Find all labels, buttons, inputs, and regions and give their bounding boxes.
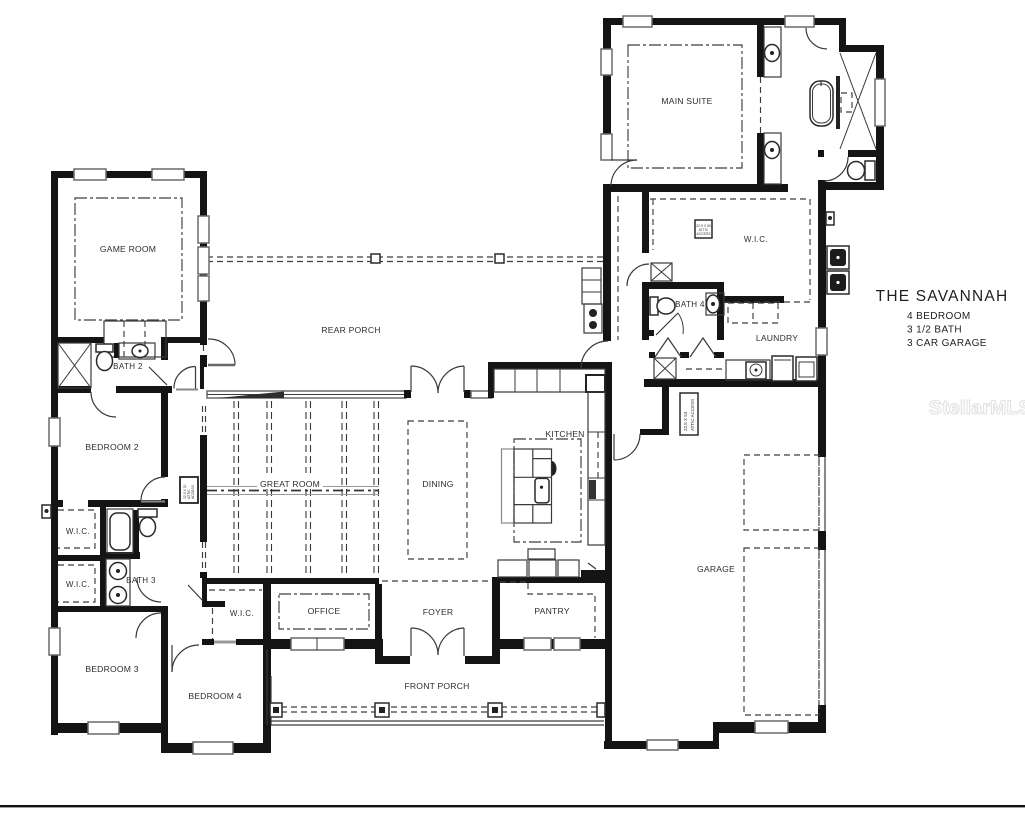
svg-text:BATH 4: BATH 4 bbox=[675, 300, 705, 309]
svg-text:BEDROOM 3: BEDROOM 3 bbox=[85, 664, 138, 674]
svg-text:FRONT PORCH: FRONT PORCH bbox=[404, 681, 469, 691]
svg-text:W.I.C.: W.I.C. bbox=[66, 527, 90, 536]
svg-text:GAME ROOM: GAME ROOM bbox=[100, 244, 156, 254]
svg-text:W.I.C.: W.I.C. bbox=[66, 580, 90, 589]
svg-text:THE SAVANNAH: THE SAVANNAH bbox=[876, 288, 1009, 305]
svg-text:3 1/2 BATH: 3 1/2 BATH bbox=[907, 325, 962, 336]
svg-text:22.5 X 54: 22.5 X 54 bbox=[683, 411, 688, 431]
svg-text:BATH 3: BATH 3 bbox=[126, 576, 156, 585]
svg-text:MAIN SUITE: MAIN SUITE bbox=[661, 96, 712, 106]
svg-text:PANTRY: PANTRY bbox=[534, 606, 569, 616]
svg-text:FOYER: FOYER bbox=[423, 607, 454, 617]
svg-text:4 BEDROOM: 4 BEDROOM bbox=[907, 311, 971, 322]
svg-text:ACCESS: ACCESS bbox=[191, 484, 195, 499]
svg-text:W.I.C.: W.I.C. bbox=[230, 609, 254, 618]
svg-text:3 CAR GARAGE: 3 CAR GARAGE bbox=[907, 338, 987, 349]
svg-text:REAR PORCH: REAR PORCH bbox=[321, 325, 380, 335]
svg-text:ATTIC ACCESS: ATTIC ACCESS bbox=[690, 399, 695, 431]
svg-text:W.I.C.: W.I.C. bbox=[744, 235, 768, 244]
svg-text:BEDROOM 2: BEDROOM 2 bbox=[85, 442, 138, 452]
svg-text:StellarMLS: StellarMLS bbox=[929, 397, 1025, 419]
svg-text:KITCHEN: KITCHEN bbox=[545, 429, 584, 439]
svg-text:OFFICE: OFFICE bbox=[308, 606, 341, 616]
svg-text:LAUNDRY: LAUNDRY bbox=[756, 333, 798, 343]
svg-text:ACCESS: ACCESS bbox=[697, 232, 712, 236]
svg-text:BEDROOM 4: BEDROOM 4 bbox=[188, 691, 241, 701]
svg-text:GREAT ROOM: GREAT ROOM bbox=[260, 479, 320, 489]
svg-text:BATH 2: BATH 2 bbox=[113, 362, 143, 371]
svg-text:GARAGE: GARAGE bbox=[697, 564, 735, 574]
svg-text:DINING: DINING bbox=[422, 479, 453, 489]
